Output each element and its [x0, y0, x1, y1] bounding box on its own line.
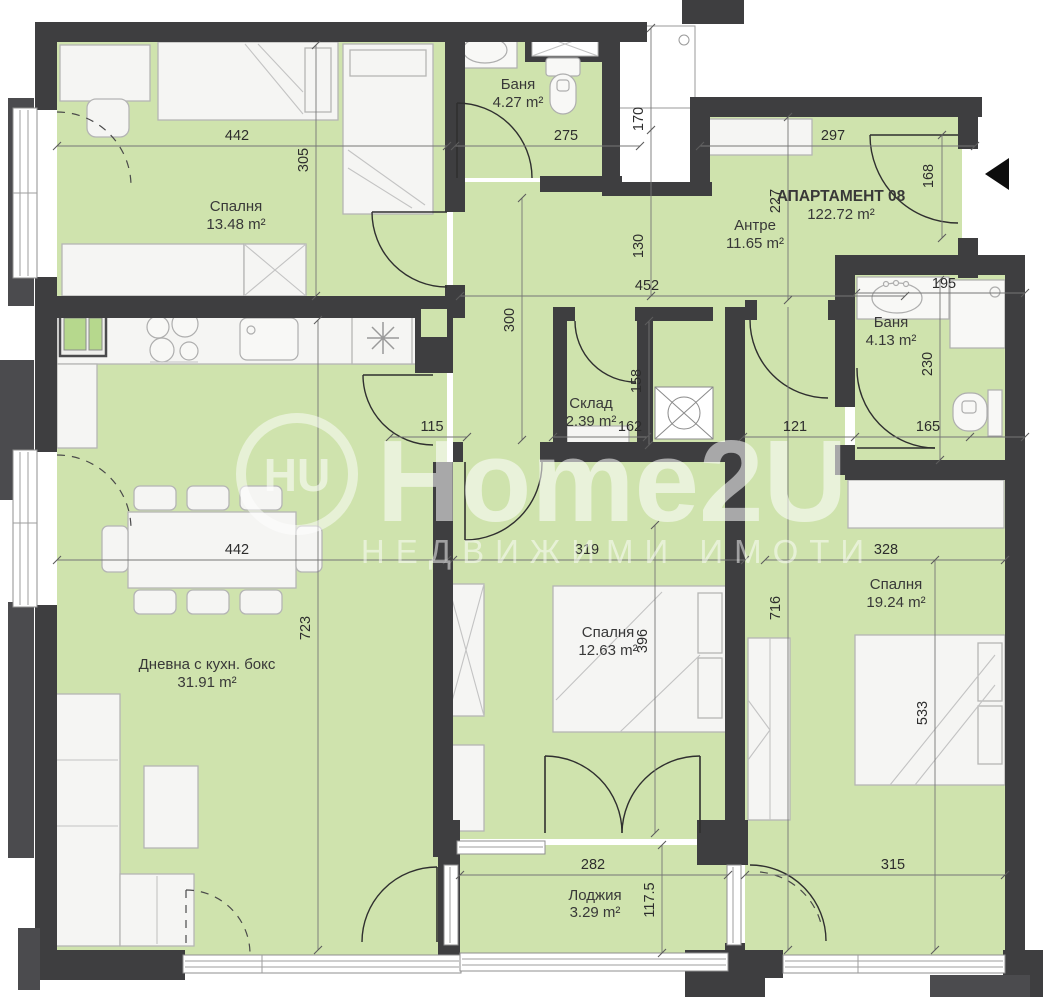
dim-hall-right-width: 297: [821, 128, 845, 144]
window-living-left: [13, 450, 37, 607]
dim-bath2-depth: 230: [920, 352, 936, 376]
room-area: 4.27 m²: [493, 94, 544, 111]
dim-bedroom3-bottom-width: 315: [881, 857, 905, 873]
window-bedroom1: [13, 108, 37, 278]
room-area: 11.65 m²: [726, 235, 784, 252]
room-name: Лоджия: [568, 887, 621, 904]
label-hall: Антре 11.65 m²: [726, 217, 784, 252]
glazing-bedroom2-loggia: [457, 841, 545, 854]
hall-wardrobe: [702, 119, 812, 155]
watermark-tagline: НЕДВИЖИМИ ИМОТИ: [361, 533, 875, 570]
dim-bedroom1-width: 442: [225, 128, 249, 144]
watermark-brand: Home2U: [377, 416, 848, 546]
room-name: Спалня: [870, 576, 922, 593]
room-name: Дневна с кухн. бокс: [139, 656, 276, 673]
dim-bath2-bottom-width: 165: [916, 419, 940, 435]
apartment-area: 122.72 m²: [807, 206, 875, 223]
dim-bedroom3-depth: 716: [768, 596, 784, 620]
fridge-icon: [352, 312, 412, 364]
window-living-bottom: [183, 955, 461, 973]
dim-bed3-span: 533: [915, 701, 931, 725]
dim-living-width: 442: [225, 542, 249, 558]
room-area: 13.48 m²: [206, 216, 265, 233]
window-bedroom3-bottom: [783, 955, 1005, 973]
dim-storage-depth: 158: [629, 369, 645, 393]
floor-plan: 442 275 297 452 195 115 162 121 165 442 …: [0, 0, 1058, 997]
room-name: Спалня: [210, 198, 262, 215]
bed-double-bedroom2: [553, 586, 729, 732]
label-bedroom2: Спалня 12.63 m²: [578, 624, 637, 659]
glazing-loggia-bedroom3: [727, 865, 741, 945]
dim-entry-opening: 168: [921, 164, 937, 188]
room-name: Баня: [874, 314, 909, 331]
bath2-toilet-icon: [953, 390, 1002, 436]
dim-bath1-width: 275: [554, 128, 578, 144]
room-name: Склад: [569, 395, 613, 412]
dim-shaft-height: 170: [631, 107, 647, 131]
bed-single-right: [343, 44, 433, 214]
kitchen-side-cabinet: [57, 364, 97, 448]
dim-loggia-depth: 117.5: [642, 882, 658, 917]
coffee-table: [144, 766, 198, 848]
label-loggia: Лоджия 3.29 m²: [568, 887, 621, 921]
bath1-toilet-icon: [546, 58, 580, 114]
dim-hall-width: 452: [635, 278, 659, 294]
label-bedroom1: Спалня 13.48 m²: [206, 198, 265, 233]
dim-bedroom3-width: 328: [874, 542, 898, 558]
room-name: Спалня: [582, 624, 634, 641]
dim-loggia-width: 282: [581, 857, 605, 873]
room-area: 3.29 m²: [570, 904, 621, 921]
sink-icon: [240, 318, 298, 360]
room-name: Баня: [501, 76, 536, 93]
dim-corridor-depth: 300: [502, 308, 518, 332]
floor-plan-page: 442 275 297 452 195 115 162 121 165 442 …: [0, 0, 1058, 997]
glazing-living-loggia: [444, 865, 458, 945]
bath2-shower-icon: [950, 280, 1005, 348]
entrance-arrow-icon: [985, 158, 1009, 190]
loggia-railing: [460, 953, 728, 971]
tv-panel-bedroom2: [448, 584, 484, 831]
room-area: 19.24 m²: [866, 594, 925, 611]
dim-hall-mid: 130: [631, 234, 647, 258]
room-name: Антре: [734, 217, 776, 234]
room-area: 12.63 m²: [578, 642, 637, 659]
dim-bath2-top-width: 195: [932, 276, 956, 292]
room-area: 4.13 m²: [866, 332, 917, 349]
dim-living-depth: 723: [298, 616, 314, 640]
bed-single-top: [158, 42, 338, 120]
apartment-title: АПАРТАМЕНТ 08: [777, 188, 906, 205]
watermark-logo: HU: [264, 449, 330, 501]
label-bedroom3: Спалня 19.24 m²: [866, 576, 925, 611]
room-area: 31.91 m²: [177, 674, 236, 691]
cabinet-bedroom1: [62, 244, 306, 296]
dim-bedroom1-depth: 305: [296, 148, 312, 172]
